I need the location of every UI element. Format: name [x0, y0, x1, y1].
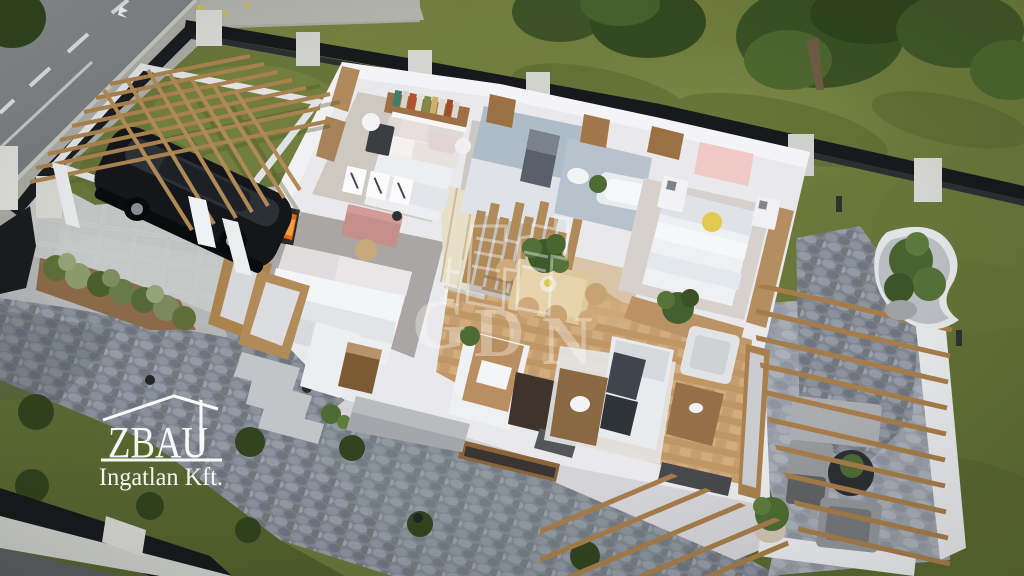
svg-text:G: G: [412, 287, 466, 364]
svg-text:N: N: [542, 303, 593, 380]
svg-text:D: D: [474, 295, 525, 372]
svg-text:Ingatlan Kft.: Ingatlan Kft.: [99, 464, 223, 491]
svg-text:ZBAU: ZBAU: [108, 418, 208, 467]
